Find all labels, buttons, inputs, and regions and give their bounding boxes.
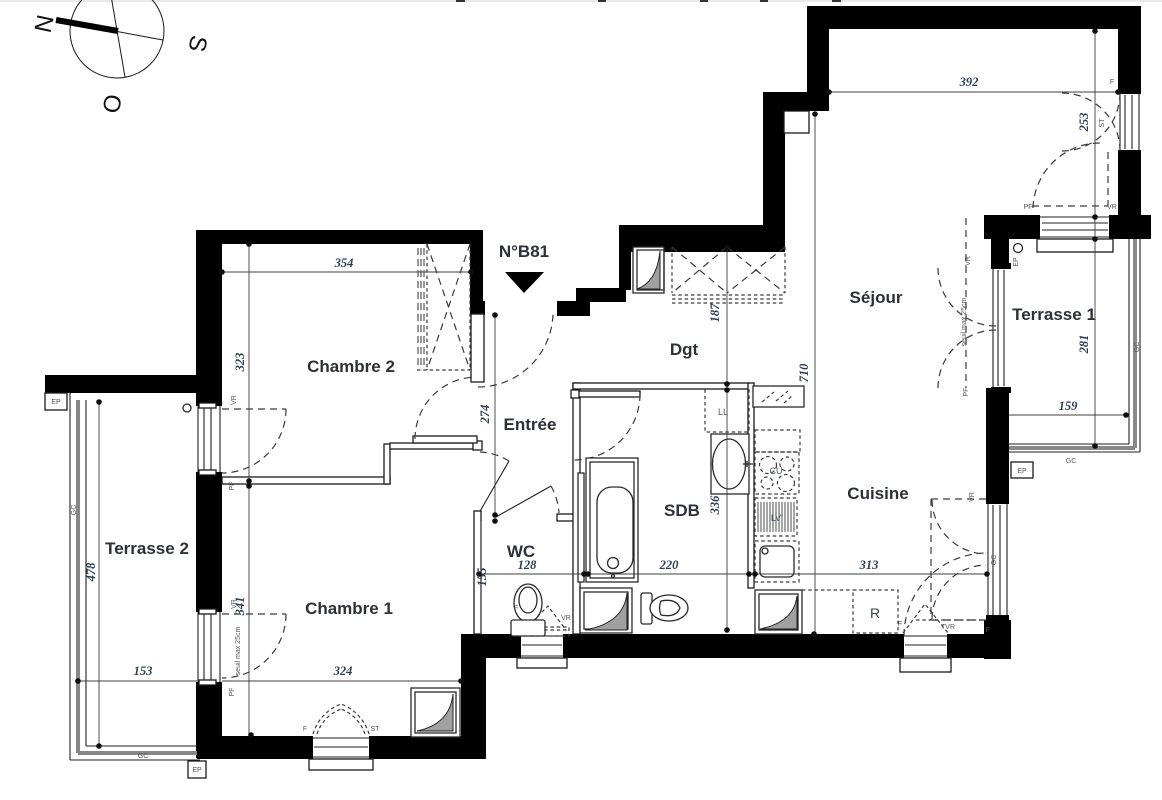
- svg-text:Terrasse 2: Terrasse 2: [105, 539, 189, 558]
- svg-text:seuil max 25cm: seuil max 25cm: [235, 627, 242, 676]
- svg-text:EP: EP: [1017, 468, 1027, 475]
- svg-text:R: R: [870, 605, 880, 621]
- svg-text:323: 323: [233, 353, 247, 373]
- svg-text:392: 392: [959, 75, 979, 89]
- svg-text:TVR: TVR: [941, 624, 955, 631]
- svg-text:GC: GC: [138, 753, 149, 760]
- svg-text:VR: VR: [969, 492, 976, 502]
- svg-text:128: 128: [518, 558, 538, 572]
- svg-text:Séjour: Séjour: [850, 288, 903, 307]
- svg-text:ST: ST: [1099, 118, 1106, 128]
- svg-text:159: 159: [1059, 399, 1079, 413]
- svg-text:EP: EP: [192, 767, 202, 774]
- svg-text:Cuisine: Cuisine: [847, 484, 908, 503]
- svg-text:seuil max 25cm: seuil max 25cm: [961, 298, 968, 347]
- svg-text:SDB: SDB: [664, 501, 700, 520]
- svg-text:PF: PF: [229, 688, 236, 697]
- svg-text:VR: VR: [1107, 204, 1117, 211]
- svg-text:F: F: [303, 726, 307, 733]
- svg-text:GC: GC: [1134, 342, 1141, 353]
- svg-text:F: F: [1110, 79, 1114, 86]
- svg-text:324: 324: [333, 664, 353, 678]
- svg-text:153: 153: [134, 664, 153, 678]
- svg-text:478: 478: [84, 562, 98, 583]
- svg-text:274: 274: [478, 405, 492, 425]
- svg-text:EP: EP: [51, 399, 61, 406]
- svg-text:GC: GC: [1066, 458, 1077, 465]
- svg-text:F: F: [898, 621, 902, 628]
- svg-text:Chambre 2: Chambre 2: [307, 357, 395, 376]
- svg-text:710: 710: [797, 363, 811, 383]
- svg-text:EP: EP: [1013, 257, 1020, 267]
- svg-text:PF: PF: [229, 482, 236, 491]
- svg-text:281: 281: [1077, 335, 1091, 355]
- svg-text:220: 220: [659, 558, 680, 572]
- svg-text:GC: GC: [71, 505, 78, 516]
- svg-text:VR: VR: [231, 395, 238, 405]
- svg-text:LV: LV: [771, 513, 781, 523]
- svg-text:Chambre 1: Chambre 1: [305, 599, 393, 618]
- svg-text:ST: ST: [371, 726, 381, 733]
- svg-text:CU: CU: [770, 466, 783, 476]
- svg-text:336: 336: [708, 495, 722, 516]
- svg-text:155: 155: [475, 568, 489, 587]
- svg-text:VR: VR: [561, 615, 571, 622]
- svg-text:313: 313: [859, 558, 879, 572]
- svg-text:F: F: [986, 627, 990, 634]
- svg-text:PF: PF: [963, 388, 970, 397]
- svg-text:LL: LL: [718, 407, 728, 417]
- svg-text:N°B81: N°B81: [499, 242, 549, 261]
- svg-text:354: 354: [334, 256, 354, 270]
- svg-text:GC: GC: [991, 555, 998, 566]
- svg-text:PF: PF: [1024, 204, 1033, 211]
- svg-text:187: 187: [708, 303, 722, 323]
- svg-text:VR: VR: [965, 256, 972, 266]
- svg-text:Dgt: Dgt: [670, 340, 699, 359]
- svg-text:253: 253: [1077, 113, 1091, 133]
- svg-text:VR: VR: [231, 599, 238, 609]
- svg-text:F: F: [514, 605, 518, 612]
- svg-text:Terrasse 1: Terrasse 1: [1012, 305, 1096, 324]
- svg-text:Entrée: Entrée: [504, 415, 557, 434]
